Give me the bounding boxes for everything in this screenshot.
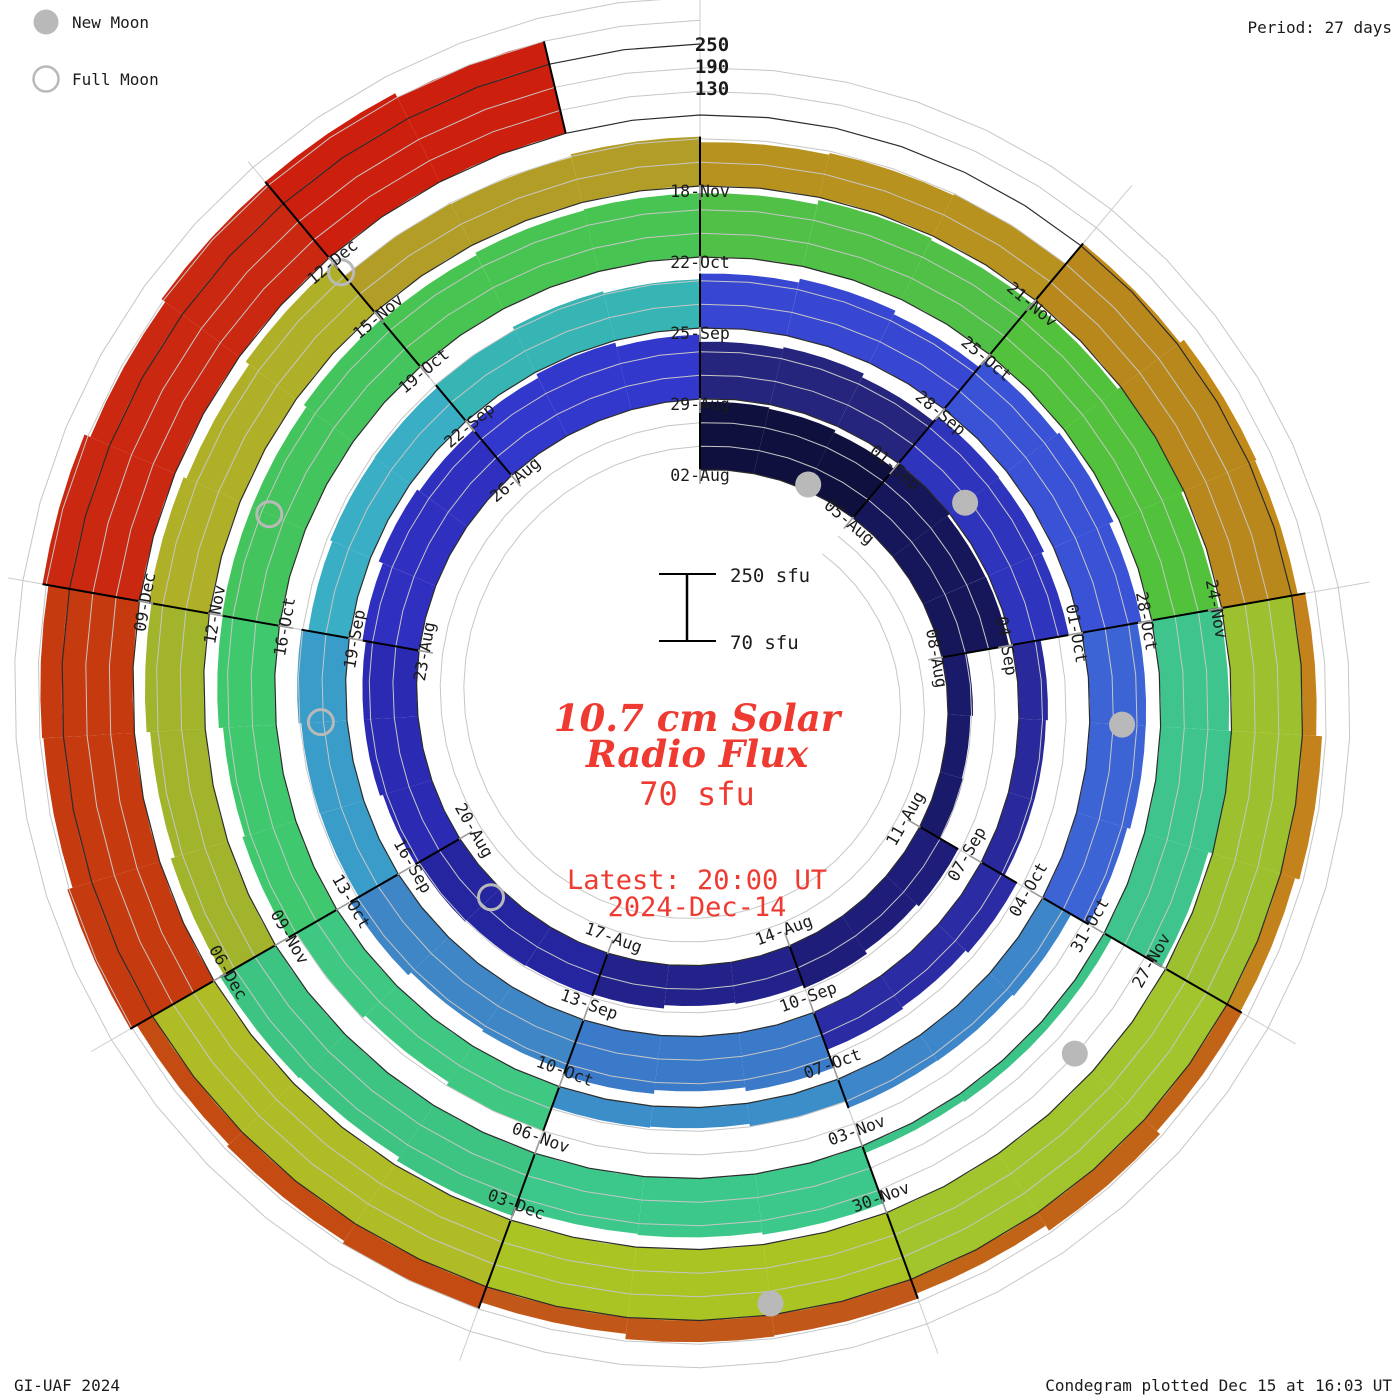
date-label: 29-Aug — [670, 395, 730, 414]
flux-bar — [363, 641, 420, 720]
flux-bar — [920, 973, 1012, 1061]
flux-bar — [62, 589, 140, 737]
flux-bar — [1009, 719, 1046, 801]
date-label: 18-Nov — [670, 182, 730, 201]
condegram-chart: 02-Aug05-Aug08-Aug11-Aug14-Aug17-Aug20-A… — [0, 0, 1400, 1400]
radial-scale-250: 250 — [695, 34, 729, 56]
full-moon-label: Full Moon — [72, 70, 159, 89]
date-label: 25-Sep — [670, 324, 730, 343]
flux-bar — [664, 962, 735, 1006]
new-moon-marker — [758, 1291, 784, 1317]
radial-scale-130: 130 — [695, 78, 729, 100]
date-label: 22-Oct — [670, 253, 730, 272]
flux-bar — [150, 729, 228, 857]
flux-bar — [990, 898, 1072, 996]
condegram-page: 02-Aug05-Aug08-Aug11-Aug14-Aug17-Aug20-A… — [0, 0, 1400, 1400]
full-moon-icon — [34, 67, 59, 92]
flux-bar — [920, 772, 964, 839]
flux-bars — [40, 41, 1322, 1342]
scalebar-top-label: 250 sfu — [730, 565, 810, 587]
scalebar-bottom-label: 70 sfu — [730, 632, 799, 654]
chart-title-line2: Radio Flux — [585, 732, 809, 776]
plotted-label: Condegram plotted Dec 15 at 16:03 UT — [1045, 1376, 1392, 1395]
period-label: Period: 27 days — [1248, 18, 1393, 37]
new-moon-marker — [1109, 712, 1135, 738]
flux-bar — [552, 1087, 653, 1128]
new-moon-label: New Moon — [72, 13, 149, 32]
flux-bar — [1222, 596, 1303, 735]
date-label: 02-Aug — [670, 466, 730, 485]
current-flux-value: 70 sfu — [639, 775, 755, 813]
flux-bar — [638, 1174, 763, 1237]
new-moon-marker — [952, 490, 978, 516]
new-moon-marker — [1062, 1041, 1088, 1067]
flux-bar — [217, 616, 279, 728]
new-moon-icon — [34, 10, 59, 35]
radial-scale-190: 190 — [695, 56, 729, 78]
flux-bar — [145, 603, 209, 732]
flux-bar — [628, 1245, 772, 1321]
latest-date: 2024-Dec-14 — [608, 892, 787, 923]
new-moon-marker — [795, 472, 821, 498]
flux-scalebar: 250 sfu 70 sfu — [659, 565, 810, 654]
credit-label: GI-UAF 2024 — [14, 1376, 120, 1395]
